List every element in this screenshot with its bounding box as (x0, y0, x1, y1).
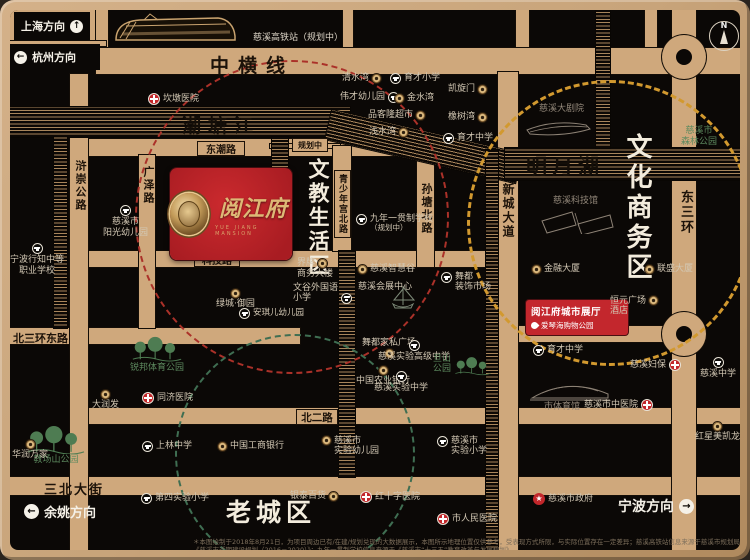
poi-qianshuiwan: 浅水湾 (369, 127, 408, 137)
map-frame: 上海方向 ↑ ← 杭州方向 慈溪高铁站（规划中） N 中横线 东潮路 科技路 规… (0, 0, 750, 560)
poi-cixi-middle-school: 慈溪中学 (700, 357, 736, 379)
poi-wudu-deco-market: 舞都装饰市场 (441, 272, 491, 293)
poi-gymnasium: 市体育馆 (544, 402, 580, 412)
ningbo-direction-label: 宁波方向 (618, 496, 674, 516)
school-icon (32, 243, 43, 254)
poi-jiepai-tower: 界牌商务大楼 (297, 258, 333, 280)
poi-jinshuiwan: 金水湾 (395, 93, 434, 103)
north-arrow-icon: N (721, 21, 728, 30)
poi-darunfa: 大润发 (92, 390, 119, 410)
store-badge-icon (416, 111, 425, 120)
poi-xiangshuwan: 橡树湾 (448, 112, 487, 122)
arrow-left-icon: ← (14, 51, 27, 64)
property-subtitle: YUE JIANG MANSION (215, 225, 292, 237)
hotel-badge-icon (649, 296, 658, 305)
school-icon (239, 308, 250, 319)
poi-lvcheng-yuyuan: 绿城·御园 (216, 289, 255, 309)
aegean-logo-icon (530, 321, 540, 331)
road-label-beisanhuandonglu: 北三环东路 (13, 330, 68, 346)
poi-experimental-kindergarten: 慈溪市实验幼儿园 (322, 436, 379, 457)
poi-yucai-middle-north: 育才中学 (443, 133, 493, 144)
road-label-zhonghengxian: 中横线 (210, 51, 294, 78)
poi-yintai-department-store: 银泰百货 (290, 491, 338, 501)
road-top-stub-2 (343, 10, 353, 48)
poi-grand-theater: 慈溪大剧院 (539, 104, 584, 114)
property-block: 阅江府 YUE JIANG MANSION (170, 168, 292, 260)
store-badge-icon (713, 422, 722, 431)
river-chaotangjiang (10, 107, 350, 137)
road-label-qingshaoniangongbeilu: 青少年宫北路 (334, 170, 351, 238)
road-top-stub-4 (645, 10, 657, 48)
poi-danshan-park: 旦山公园 (433, 354, 492, 378)
tower-badge-icon (532, 265, 541, 274)
arrow-up-icon: ↑ (70, 20, 83, 33)
poi-xingzhi-vocational-school: 宁波行知中等职业学校 (10, 243, 64, 277)
poi-liansheng-tower: 联盛大厦 (645, 264, 693, 274)
poi-yucai-middle-south: 育才中学 (533, 345, 583, 356)
poi-forest-park: 慈溪市森林公园 (681, 126, 717, 148)
roundabout-south (662, 312, 706, 356)
poi-city-government: ★慈溪市政府 (533, 493, 593, 505)
poi-peoples-hospital: 市人民医院 (437, 513, 497, 525)
poi-shanglin-middle: 上林中学 (142, 441, 192, 452)
school-icon (390, 73, 401, 84)
school-icon (341, 293, 352, 304)
tower-badge-icon (645, 265, 654, 274)
estate-badge-icon (372, 74, 381, 83)
compass: N (709, 21, 739, 51)
market-icon (441, 272, 452, 283)
yuyao-direction: ← 余姚方向 (24, 502, 96, 521)
hospital-icon (360, 491, 372, 503)
location-map: 上海方向 ↑ ← 杭州方向 慈溪高铁站（规划中） N 中横线 东潮路 科技路 规… (10, 10, 740, 550)
trees-icon (454, 354, 492, 378)
poi-kaixuanmen: 凯旋门 (448, 84, 487, 94)
school-icon (437, 436, 448, 447)
property-emblem-icon (170, 193, 208, 235)
shanghai-direction-box: 上海方向 ↑ (14, 12, 90, 40)
estate-badge-icon (478, 113, 487, 122)
school-icon (443, 133, 454, 144)
water-label-chaotangjiang: 潮塘江 (182, 111, 260, 138)
school-icon (120, 205, 131, 216)
road-dongsanhuan (672, 10, 696, 550)
school-icon (141, 493, 152, 504)
road-label-xinchengdadao: 新城大道 (500, 183, 517, 239)
road-label-planned: 规划中 (292, 138, 328, 152)
estate-badge-icon (399, 128, 408, 137)
canal-c (596, 10, 610, 148)
poi-kandun-hospital: 坎墩医院 (148, 93, 199, 105)
road-label-guangzelu: 广泽路 (140, 166, 156, 205)
school-badge-icon (322, 436, 331, 445)
science-museum-sketch (538, 208, 618, 234)
poi-yangguang-kindergarten: 慈溪市阳光幼儿园 (103, 205, 148, 239)
canal-e (54, 137, 67, 328)
road-label-dongsanhuan: 东三环 (676, 190, 695, 235)
store-badge-icon (26, 440, 35, 449)
poi-fourth-experimental-primary: 第四实验小学 (141, 493, 209, 504)
roundabout-north (662, 35, 706, 79)
school-icon (356, 214, 367, 225)
poi-jinrong-tower: 金融大厦 (532, 264, 580, 274)
road-zhonghengxian (96, 48, 740, 74)
poi-science-museum: 慈溪科技馆 (553, 196, 598, 206)
hospital-icon (148, 93, 160, 105)
hospital-icon (669, 359, 681, 371)
canal-d (486, 150, 498, 550)
school-icon (409, 340, 420, 351)
water-label-mingyuehu: 明月湖 (526, 151, 604, 181)
district-wenhua: 文化商务区 (619, 133, 656, 283)
yuyao-direction-label: 余姚方向 (44, 502, 96, 521)
school-icon (713, 357, 724, 368)
theater-sketch (524, 117, 596, 139)
poi-nine-year-school: 九年一贯制学校（规划中） (356, 214, 433, 233)
road-top-stub-3 (516, 10, 529, 48)
estate-badge-icon (395, 94, 404, 103)
poi-tcm-hospital: 慈溪市中医院 (584, 399, 653, 411)
poi-experimental-middle: 慈溪实验中学 (374, 371, 428, 393)
hospital-icon (437, 513, 449, 525)
store-badge-icon (101, 390, 110, 399)
train-sketch (110, 13, 238, 45)
poi-weicai-kindergarten: 伟才幼儿园 (340, 92, 399, 103)
poi-hengyuan-hotel: 恒元广场酒店 (610, 296, 658, 317)
poi-ruibang-sports-park: 锐邦体育公园 (130, 336, 184, 373)
ningbo-direction: 宁波方向 → (618, 496, 694, 516)
hangzhou-direction-label: 杭州方向 (32, 49, 76, 65)
poi-cixi-fubao-hospital: 慈溪妇保 (630, 359, 681, 371)
hospital-icon (641, 399, 653, 411)
tower-badge-icon (318, 259, 327, 268)
map-disclaimer: ＊本图绘制于2018年8月21日，为项目周边已有/在建/规划兑现的大数据展示，本… (193, 538, 740, 550)
poi-icbc-bank: 中国工商银行 (218, 441, 284, 451)
poi-zhihuigu: 慈溪智慧谷 (358, 264, 415, 274)
poi-qingshuiwan: 清水湾 (342, 73, 381, 83)
hospital-icon (142, 392, 154, 404)
trees-icon (131, 336, 183, 362)
hangzhou-direction-box: ← 杭州方向 (10, 44, 100, 70)
shanghai-direction-label: 上海方向 (21, 18, 65, 34)
poi-tongji-hospital: 同济医院 (142, 392, 193, 404)
poi-redcross-hospital: 红十字医院 (360, 491, 420, 503)
showroom-subtitle: 爱琴海购物公园 (541, 320, 594, 331)
tower-badge-icon (358, 265, 367, 274)
arrow-left-icon: ← (24, 504, 39, 519)
road-label-dongchaolu: 东潮路 (197, 141, 245, 156)
poi-huarun-vanguard: 华润万家 (12, 440, 48, 460)
property-name: 阅江府 (219, 191, 288, 223)
store-badge-icon (329, 492, 338, 501)
road-label-sanbeidajie: 三北大街 (44, 479, 104, 498)
government-star-icon: ★ (533, 493, 545, 505)
poi-yucai-primary: 育才小学 (390, 73, 440, 84)
road-xinchengdadao (498, 72, 518, 550)
school-icon (396, 371, 407, 382)
station-label: 慈溪高铁站（规划中） (253, 30, 343, 43)
school-icon (142, 441, 153, 452)
bank-badge-icon (218, 442, 227, 451)
arrow-right-icon: → (679, 499, 694, 514)
poi-hongxing-macalline: 红星美凯龙 (695, 422, 740, 442)
estate-badge-icon (231, 289, 240, 298)
school-icon (533, 345, 544, 356)
estate-badge-icon (478, 85, 487, 94)
road-label-huchonggonglu: 浒崇公路 (72, 160, 88, 212)
poi-wengu-school: 文谷外国语小学 (293, 283, 352, 304)
poi-experimental-primary: 慈溪市实验小学 (437, 436, 487, 457)
poi-convention-center: 慈溪会展中心 (358, 282, 412, 292)
road-label-beierlu: 北二路 (296, 409, 338, 425)
poi-anqier-kindergarten: 安琪儿幼儿园 (239, 308, 304, 319)
poi-pinkelong-supermarket: 品客隆超市 (368, 110, 425, 120)
